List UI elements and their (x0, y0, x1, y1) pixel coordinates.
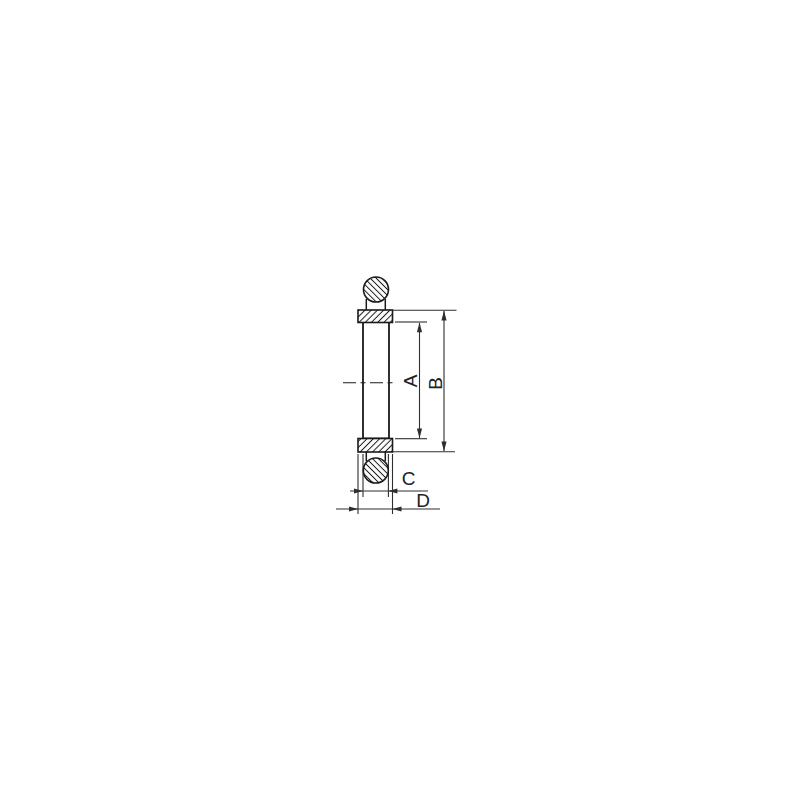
dim-c-arrow-left (354, 489, 363, 494)
ring-body (363, 322, 389, 439)
oring-cross-section-top (364, 277, 389, 302)
dim-d-arrow-left (349, 507, 358, 512)
ring-section-top (358, 310, 393, 323)
drawing-canvas: A B C D (0, 0, 799, 800)
dim-a-arrow-bottom (417, 429, 422, 439)
dim-b-arrow-top (441, 311, 446, 321)
dim-d-label: D (416, 490, 430, 511)
oring-cross-section-bottom (363, 458, 388, 483)
technical-drawing: A B C D (0, 0, 799, 800)
dim-a-label: A (400, 374, 421, 387)
dim-c-label: C (402, 468, 416, 489)
dim-b-arrow-bottom (441, 442, 446, 452)
dim-b-label: B (425, 377, 446, 390)
dim-d-arrow-right (392, 507, 401, 512)
dim-a-arrow-top (417, 323, 422, 333)
ring-section-bottom (358, 439, 393, 453)
